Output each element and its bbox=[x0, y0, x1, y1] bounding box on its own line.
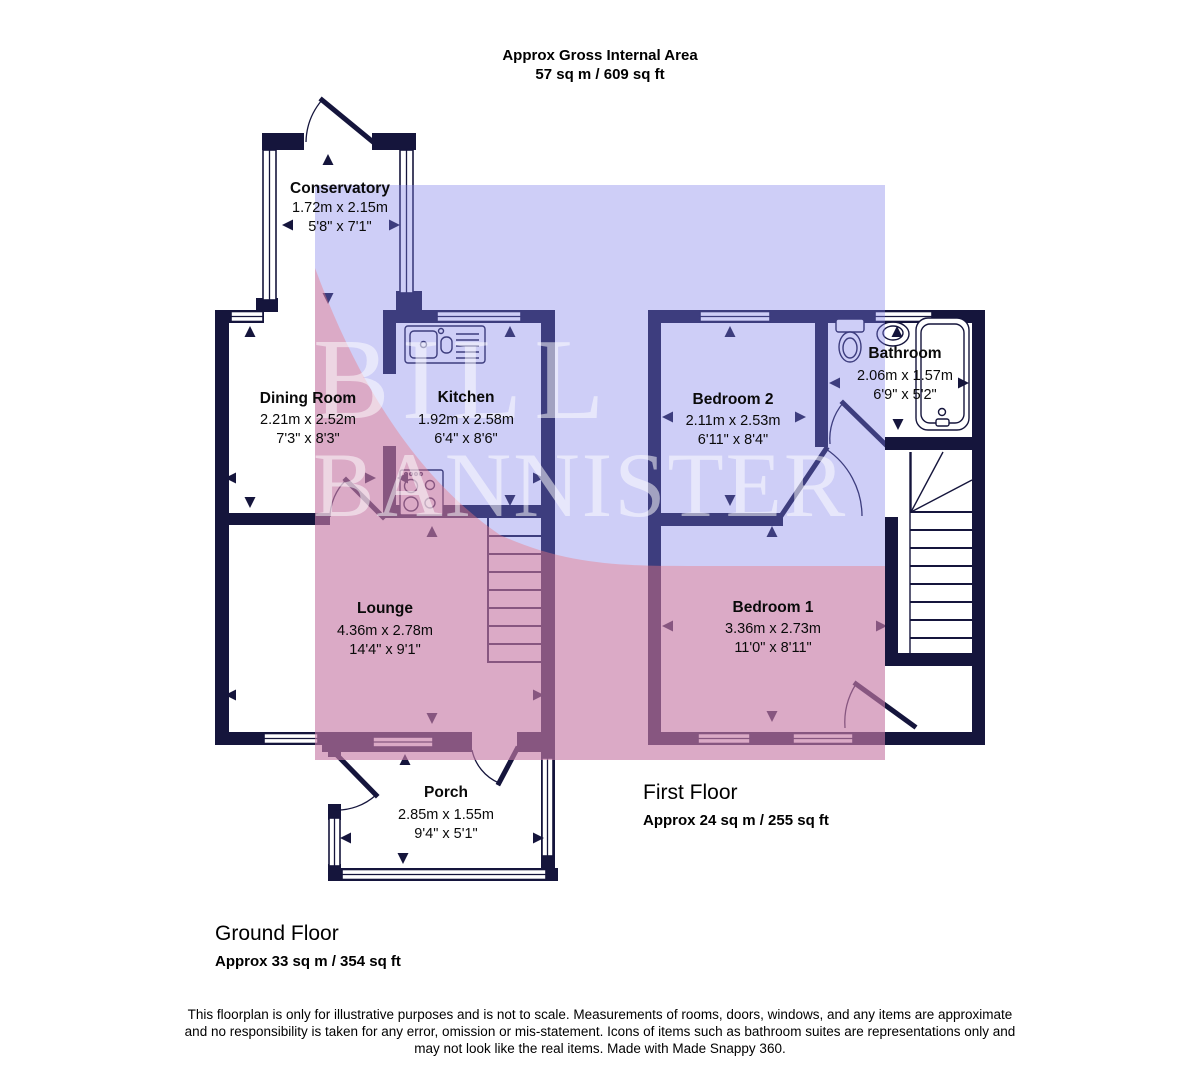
room-metric: 2.11m x 2.53m bbox=[686, 413, 781, 429]
room-imperial: 5'8" x 7'1" bbox=[308, 219, 371, 235]
window bbox=[263, 150, 276, 300]
room-name: Bedroom 1 bbox=[733, 599, 814, 616]
room-imperial: 9'4" x 5'1" bbox=[414, 826, 477, 842]
room-metric: 2.85m x 1.55m bbox=[398, 807, 494, 823]
room-name: Bathroom bbox=[868, 345, 941, 362]
conservatory-door bbox=[306, 100, 373, 142]
room-imperial: 6'9" x 5'2" bbox=[873, 387, 936, 403]
ground-floor-title: Ground Floor Approx 33 sq m / 354 sq ft bbox=[215, 922, 401, 970]
room-name: Bedroom 2 bbox=[693, 391, 774, 408]
floorplan-canvas: BILL BANNISTER Conservatory 1.72m x 2.15… bbox=[0, 0, 1200, 1080]
window bbox=[342, 870, 546, 880]
window bbox=[264, 734, 318, 744]
disclaimer-line3: may not look like the real items. Made w… bbox=[0, 1040, 1200, 1057]
ground-floor-area: Approx 33 sq m / 354 sq ft bbox=[215, 953, 401, 970]
room-imperial: 6'11" x 8'4" bbox=[698, 432, 768, 448]
room-metric: 1.92m x 2.58m bbox=[418, 412, 514, 428]
disclaimer-line1: This floorplan is only for illustrative … bbox=[0, 1006, 1200, 1023]
disclaimer-line2: and no responsibility is taken for any e… bbox=[0, 1023, 1200, 1040]
first-floor-name: First Floor bbox=[643, 781, 829, 805]
room-label-porch: Porch 2.85m x 1.55m 9'4" x 5'1" bbox=[398, 784, 494, 842]
room-metric: 2.06m x 1.57m bbox=[857, 368, 953, 384]
room-imperial: 7'3" x 8'3" bbox=[276, 431, 339, 447]
room-metric: 1.72m x 2.15m bbox=[292, 200, 388, 216]
window bbox=[231, 312, 263, 322]
room-label-bedroom1: Bedroom 1 3.36m x 2.73m 11'0" x 8'11" bbox=[725, 599, 821, 656]
window bbox=[329, 818, 340, 866]
room-imperial: 6'4" x 8'6" bbox=[434, 431, 497, 447]
room-label-bedroom2: Bedroom 2 2.11m x 2.53m 6'11" x 8'4" bbox=[686, 391, 781, 448]
window bbox=[542, 758, 553, 856]
room-metric: 4.36m x 2.78m bbox=[337, 623, 433, 639]
porch-outer-door bbox=[334, 752, 376, 810]
room-name: Conservatory bbox=[290, 180, 390, 197]
room-name: Porch bbox=[424, 784, 468, 801]
room-imperial: 14'4" x 9'1" bbox=[349, 642, 420, 658]
room-name: Dining Room bbox=[260, 390, 356, 407]
room-metric: 3.36m x 2.73m bbox=[725, 621, 821, 637]
room-imperial: 11'0" x 8'11" bbox=[734, 640, 811, 656]
disclaimer: This floorplan is only for illustrative … bbox=[0, 1006, 1200, 1057]
room-name: Kitchen bbox=[438, 389, 495, 406]
watermark-line2: BANNISTER bbox=[313, 434, 847, 536]
first-floor-stairs bbox=[910, 452, 972, 653]
room-metric: 2.21m x 2.52m bbox=[260, 412, 356, 428]
first-floor-area: Approx 24 sq m / 255 sq ft bbox=[643, 812, 829, 829]
ground-floor-name: Ground Floor bbox=[215, 922, 401, 946]
first-floor-title: First Floor Approx 24 sq m / 255 sq ft bbox=[643, 781, 829, 829]
room-name: Lounge bbox=[357, 600, 413, 617]
